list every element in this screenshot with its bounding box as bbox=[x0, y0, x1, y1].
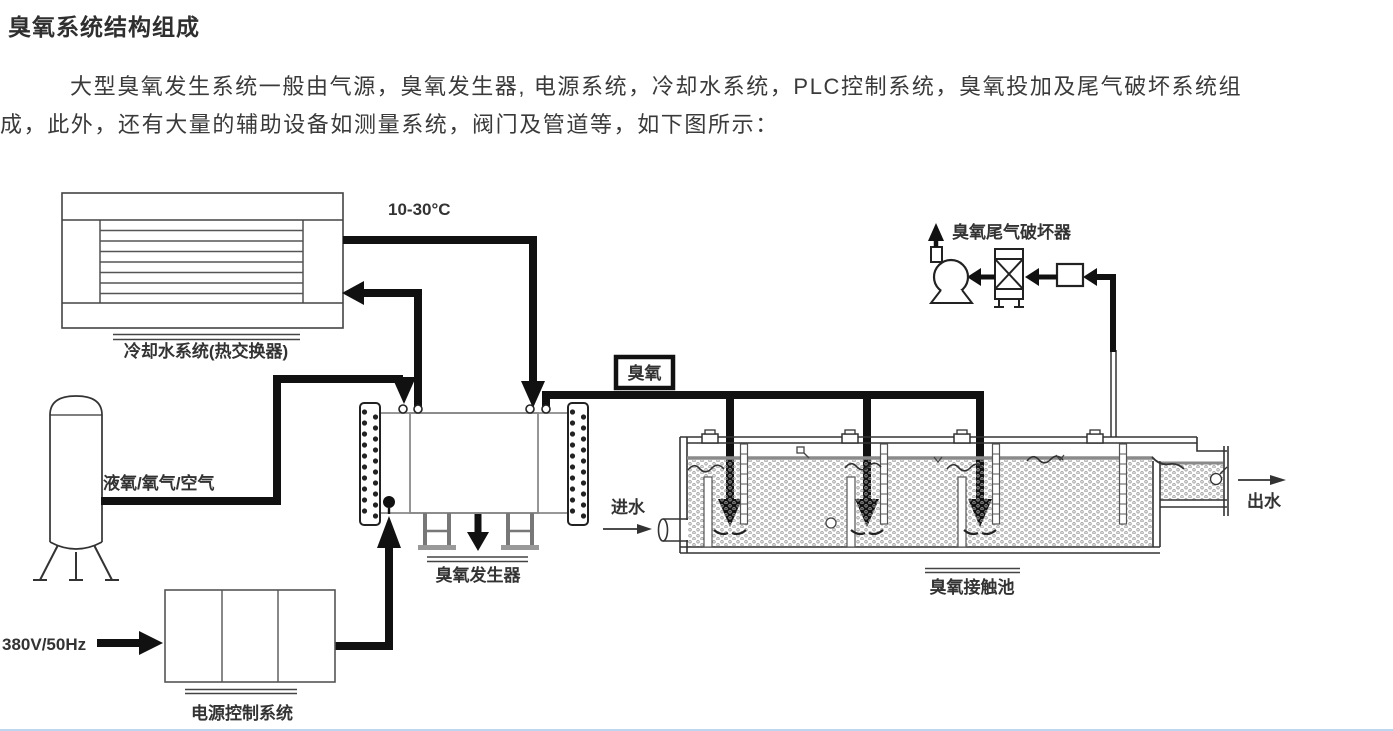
gas-source-label: 液氧/氧气/空气 bbox=[103, 473, 214, 493]
arrow-return-into-exchanger bbox=[342, 281, 364, 305]
ozone-tag-box: 臭氧 bbox=[616, 357, 673, 388]
bottom-pipe bbox=[958, 477, 966, 547]
baffle bbox=[1120, 444, 1127, 524]
bottom-pipe bbox=[704, 477, 712, 547]
ozone-generator: 臭氧发生器 bbox=[360, 403, 588, 585]
arrow-cooling-into-generator bbox=[521, 381, 545, 408]
tank-legs bbox=[33, 545, 119, 580]
water-out-arrow bbox=[1270, 475, 1286, 485]
temperature-label: 10-30°C bbox=[388, 200, 451, 219]
baffle bbox=[881, 444, 888, 524]
power-input-arrow bbox=[139, 631, 163, 655]
power-cabinet-label: 电源控制系统 bbox=[191, 703, 293, 723]
water-in: 进水 bbox=[603, 497, 652, 534]
tail-gas-label: 臭氧尾气破坏器 bbox=[952, 222, 1072, 242]
water-in-arrow bbox=[637, 524, 652, 534]
system-diagram: 冷却水系统(热交换器) 液氧/氧气/空气 bbox=[0, 0, 1393, 731]
arrow-into-vessel bbox=[1025, 268, 1039, 286]
generator-ports bbox=[399, 405, 550, 413]
tank-top-nozzle bbox=[954, 430, 970, 443]
tail-gas-destructor: 臭氧尾气破坏器 bbox=[928, 222, 1116, 437]
baffle bbox=[741, 444, 748, 524]
cooling-system-label: 冷却水系统(热交换器) bbox=[124, 341, 288, 361]
arrow-into-box bbox=[1083, 268, 1097, 286]
tail-gas-box bbox=[1057, 264, 1083, 286]
power-cabinet: 电源控制系统 380V/50Hz bbox=[2, 590, 335, 723]
bottom-pipe bbox=[847, 477, 855, 547]
ozone-tag-label: 臭氧 bbox=[628, 363, 662, 383]
generator-label: 臭氧发生器 bbox=[436, 565, 522, 585]
drain-arrow bbox=[467, 532, 489, 551]
destructor-vessel bbox=[994, 249, 1024, 307]
ozone-contact-tank: 臭氧接触池 bbox=[659, 430, 1229, 597]
water-in-label: 进水 bbox=[611, 497, 646, 517]
tank-top-nozzle bbox=[702, 430, 718, 443]
heat-exchanger: 冷却水系统(热交换器) bbox=[62, 193, 343, 361]
gas-source-tank: 液氧/氧气/空气 bbox=[33, 396, 214, 580]
pipe-tail-gas bbox=[1097, 277, 1113, 352]
power-input-label: 380V/50Hz bbox=[2, 635, 86, 654]
tank-top-nozzle bbox=[842, 430, 858, 443]
power-connector bbox=[383, 496, 395, 508]
water-out: 出水 bbox=[1238, 475, 1286, 511]
inlet-pipe bbox=[659, 519, 689, 541]
tank-water bbox=[687, 460, 1153, 547]
ozone-system-page: 臭氧系统结构组成 大型臭氧发生系统一般由气源，臭氧发生器, 电源系统，冷却水系统… bbox=[0, 0, 1393, 731]
water-out-label: 出水 bbox=[1247, 491, 1282, 511]
exhaust-arrow bbox=[928, 223, 944, 241]
arrow-gas-into-generator bbox=[392, 377, 416, 404]
baffle bbox=[993, 444, 1000, 524]
tank-top-nozzle bbox=[1087, 430, 1103, 443]
pipe-cooling-supply bbox=[343, 240, 533, 381]
pipe-power-feed bbox=[335, 548, 389, 646]
exhaust-fan bbox=[931, 247, 972, 303]
contact-tank-label: 臭氧接触池 bbox=[930, 577, 1015, 597]
